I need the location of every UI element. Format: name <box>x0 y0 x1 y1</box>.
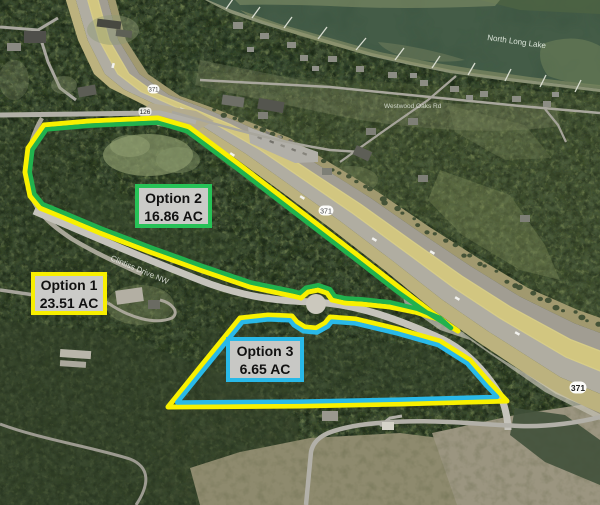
svg-text:Option 1: Option 1 <box>41 277 98 293</box>
svg-text:371: 371 <box>320 209 332 216</box>
svg-text:6.65 AC: 6.65 AC <box>240 361 291 377</box>
svg-text:16.86 AC: 16.86 AC <box>144 208 203 224</box>
svg-text:371: 371 <box>148 88 159 94</box>
svg-text:Westwood Oaks Rd: Westwood Oaks Rd <box>384 103 442 110</box>
svg-text:126: 126 <box>140 109 151 116</box>
svg-text:371: 371 <box>571 383 585 393</box>
svg-text:Option 3: Option 3 <box>237 343 294 359</box>
svg-text:Option 2: Option 2 <box>145 190 202 206</box>
svg-text:23.51 AC: 23.51 AC <box>40 295 99 311</box>
